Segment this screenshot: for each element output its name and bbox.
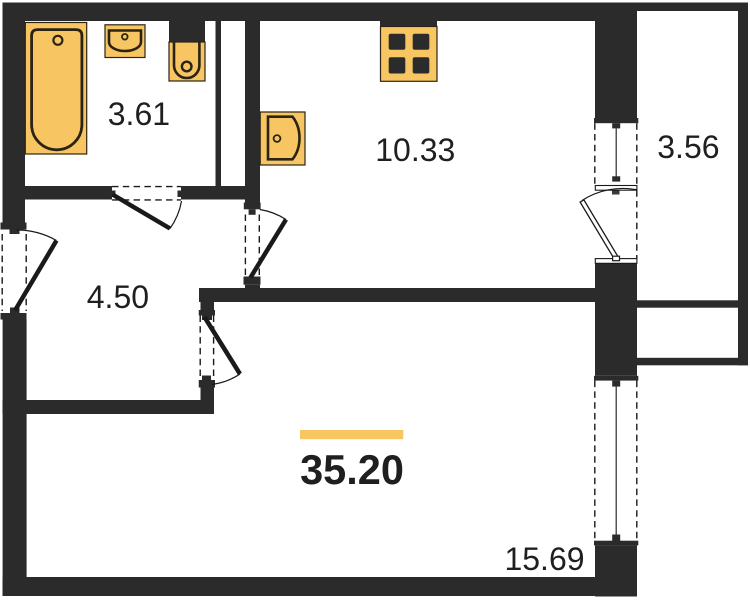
svg-text:15.69: 15.69 bbox=[504, 541, 584, 577]
svg-text:3.56: 3.56 bbox=[657, 129, 719, 165]
svg-text:35.20: 35.20 bbox=[300, 446, 404, 493]
svg-text:3.61: 3.61 bbox=[108, 96, 170, 132]
svg-text:10.33: 10.33 bbox=[375, 132, 455, 168]
svg-text:4.50: 4.50 bbox=[87, 279, 149, 315]
